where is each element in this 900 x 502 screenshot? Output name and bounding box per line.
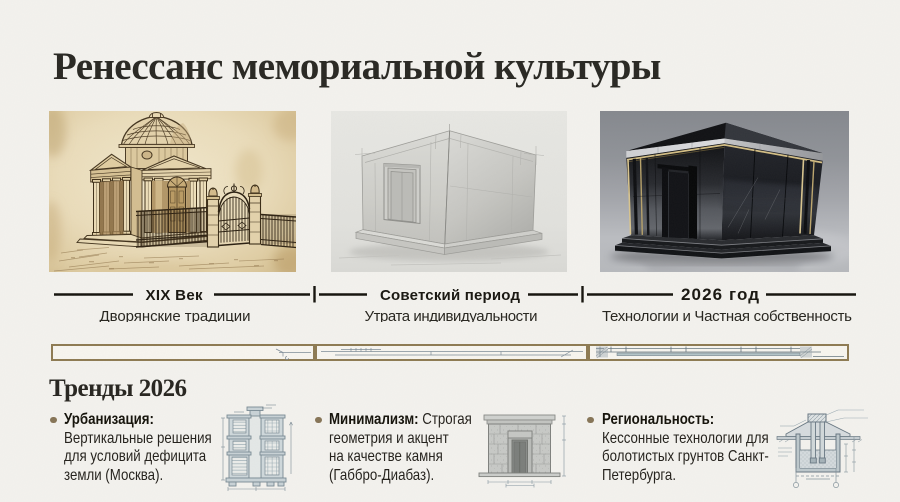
svg-text:Технологии и Частная собственн: Технологии и Частная собственность xyxy=(602,308,852,322)
svg-text:2026 год: 2026 год xyxy=(681,285,759,304)
svg-text:Дворянские традиции: Дворянские традиции xyxy=(100,308,251,322)
svg-text:Советский период: Советский период xyxy=(380,287,520,304)
svg-text:Утрата индивидуальности: Утрата индивидуальности xyxy=(365,308,538,322)
svg-text:XIX Век: XIX Век xyxy=(146,287,203,304)
